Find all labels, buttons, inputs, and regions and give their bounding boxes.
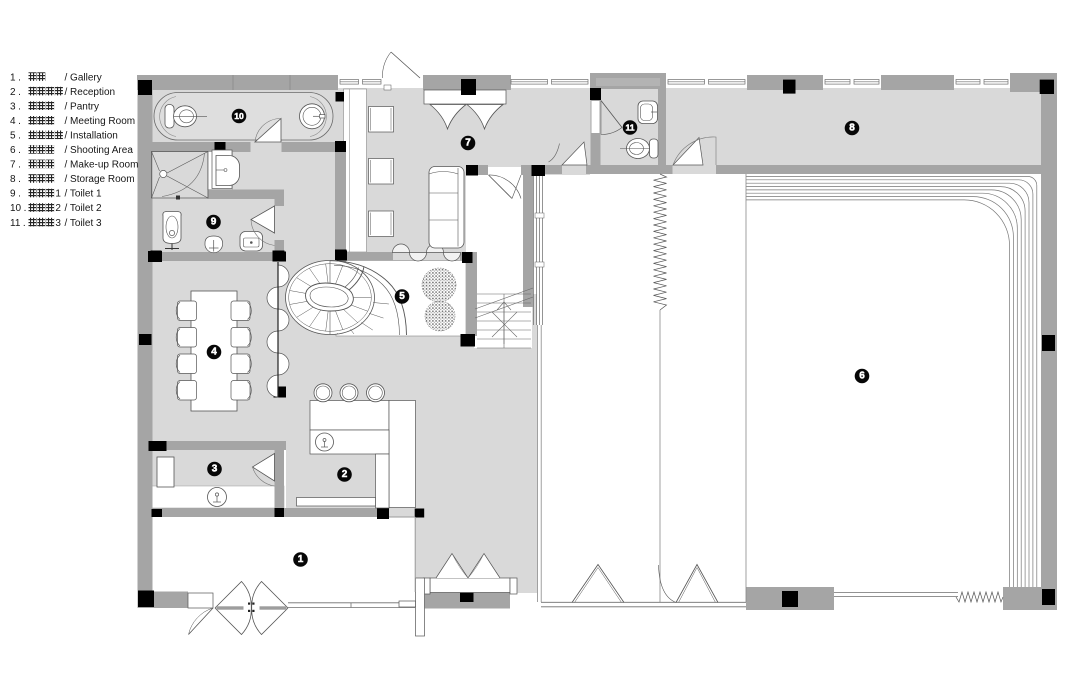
svg-text:5.: 5. xyxy=(10,131,21,142)
svg-text:11.: 11. xyxy=(10,218,26,229)
svg-text:/ Toilet 1: / Toilet 1 xyxy=(65,189,102,200)
svg-text:/ Toilet 2: / Toilet 2 xyxy=(65,203,102,214)
svg-text:/ Installation: / Installation xyxy=(65,131,118,142)
svg-text:9.: 9. xyxy=(10,189,21,200)
svg-text:2.: 2. xyxy=(10,87,21,98)
svg-text:/ Reception: / Reception xyxy=(65,87,116,98)
svg-text:3: 3 xyxy=(55,218,61,229)
svg-text:9: 9 xyxy=(211,216,217,227)
svg-text:4.: 4. xyxy=(10,116,21,127)
svg-text:7.: 7. xyxy=(10,160,21,171)
svg-text:2: 2 xyxy=(342,469,348,480)
svg-text:/ Shooting Area: / Shooting Area xyxy=(65,145,134,156)
svg-text:5: 5 xyxy=(399,291,405,302)
svg-text:11: 11 xyxy=(625,122,634,132)
svg-text:8.: 8. xyxy=(10,174,21,185)
svg-text:/ Make-up Room: / Make-up Room xyxy=(65,160,139,171)
svg-text:6: 6 xyxy=(859,370,865,381)
svg-text:4: 4 xyxy=(211,346,217,357)
svg-text:1: 1 xyxy=(55,189,61,200)
svg-text:1.: 1. xyxy=(10,72,21,83)
svg-text:1: 1 xyxy=(298,554,304,565)
svg-text:/ Meeting Room: / Meeting Room xyxy=(65,116,136,127)
svg-text:/ Toilet 3: / Toilet 3 xyxy=(65,218,102,229)
svg-text:3: 3 xyxy=(212,463,218,474)
svg-text:2: 2 xyxy=(55,203,61,214)
svg-text:3.: 3. xyxy=(10,101,21,112)
svg-text:10.: 10. xyxy=(10,203,26,214)
svg-text:/ Storage Room: / Storage Room xyxy=(65,174,135,185)
svg-text:7: 7 xyxy=(465,137,471,148)
svg-text:10: 10 xyxy=(234,111,244,121)
svg-text:8: 8 xyxy=(849,122,855,133)
svg-text:/ Pantry: / Pantry xyxy=(65,101,99,112)
svg-text:/ Gallery: / Gallery xyxy=(65,72,102,83)
svg-text:6.: 6. xyxy=(10,145,21,156)
